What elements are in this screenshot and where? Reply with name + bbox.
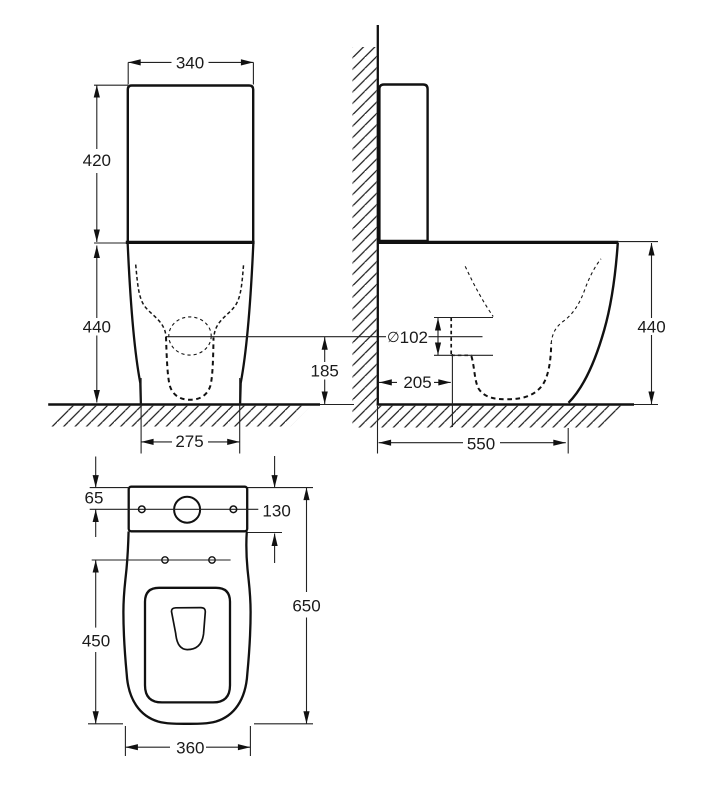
svg-text:205: 205 bbox=[403, 373, 431, 392]
svg-text:275: 275 bbox=[175, 432, 203, 451]
svg-text:340: 340 bbox=[176, 54, 204, 73]
svg-text:130: 130 bbox=[262, 502, 290, 521]
svg-text:185: 185 bbox=[311, 362, 339, 381]
svg-text:440: 440 bbox=[637, 318, 665, 337]
svg-text:360: 360 bbox=[176, 738, 204, 757]
svg-text:440: 440 bbox=[83, 318, 111, 337]
svg-text:650: 650 bbox=[292, 597, 320, 616]
svg-text:65: 65 bbox=[85, 489, 104, 508]
svg-text:450: 450 bbox=[82, 631, 110, 650]
svg-text:∅102: ∅102 bbox=[387, 328, 428, 347]
svg-text:550: 550 bbox=[467, 435, 495, 454]
svg-text:420: 420 bbox=[83, 151, 111, 170]
